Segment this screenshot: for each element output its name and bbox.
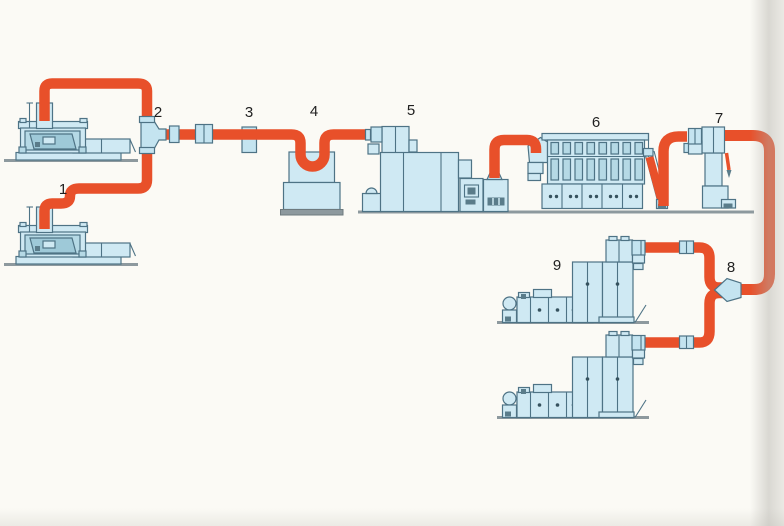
card-lower-branch-coupling: [680, 336, 694, 349]
label-4: 4: [310, 103, 318, 120]
duct-top-feeder-to-junction-2: [45, 84, 148, 123]
label-9: 9: [553, 257, 561, 274]
label-6: 6: [592, 114, 600, 131]
blowroom-line-process-diagram: 1 2 3 4 5 6 7 8 9: [0, 0, 784, 526]
diagram-canvas: 1 2 3 4 5 6 7 8 9: [0, 0, 784, 526]
duct-coupling-small: [170, 126, 180, 143]
duct-coupling-large: [196, 125, 213, 144]
label-7: 7: [715, 110, 723, 127]
junction-2-y-merge: [140, 117, 167, 154]
label-2: 2: [154, 104, 162, 121]
machine-5-inlet-fitting: [366, 127, 383, 142]
label-8: 8: [727, 259, 735, 276]
duct-junction-8-to-card-lower: [645, 293, 723, 343]
card-9-branch-coupling: [680, 241, 694, 254]
label-3: 3: [245, 104, 253, 121]
label-5: 5: [407, 102, 415, 119]
machine-card-lower: [497, 332, 649, 418]
machine-9-card: [497, 237, 649, 323]
duct-junction-2-to-machine-5: [160, 135, 371, 167]
machine-6-multimixer: [528, 134, 668, 209]
label-1: 1: [59, 181, 67, 198]
machine-top-bale-opener: [4, 103, 138, 161]
machine-1-bale-opener: [4, 207, 138, 265]
mixer-lower-doors: [542, 184, 643, 209]
